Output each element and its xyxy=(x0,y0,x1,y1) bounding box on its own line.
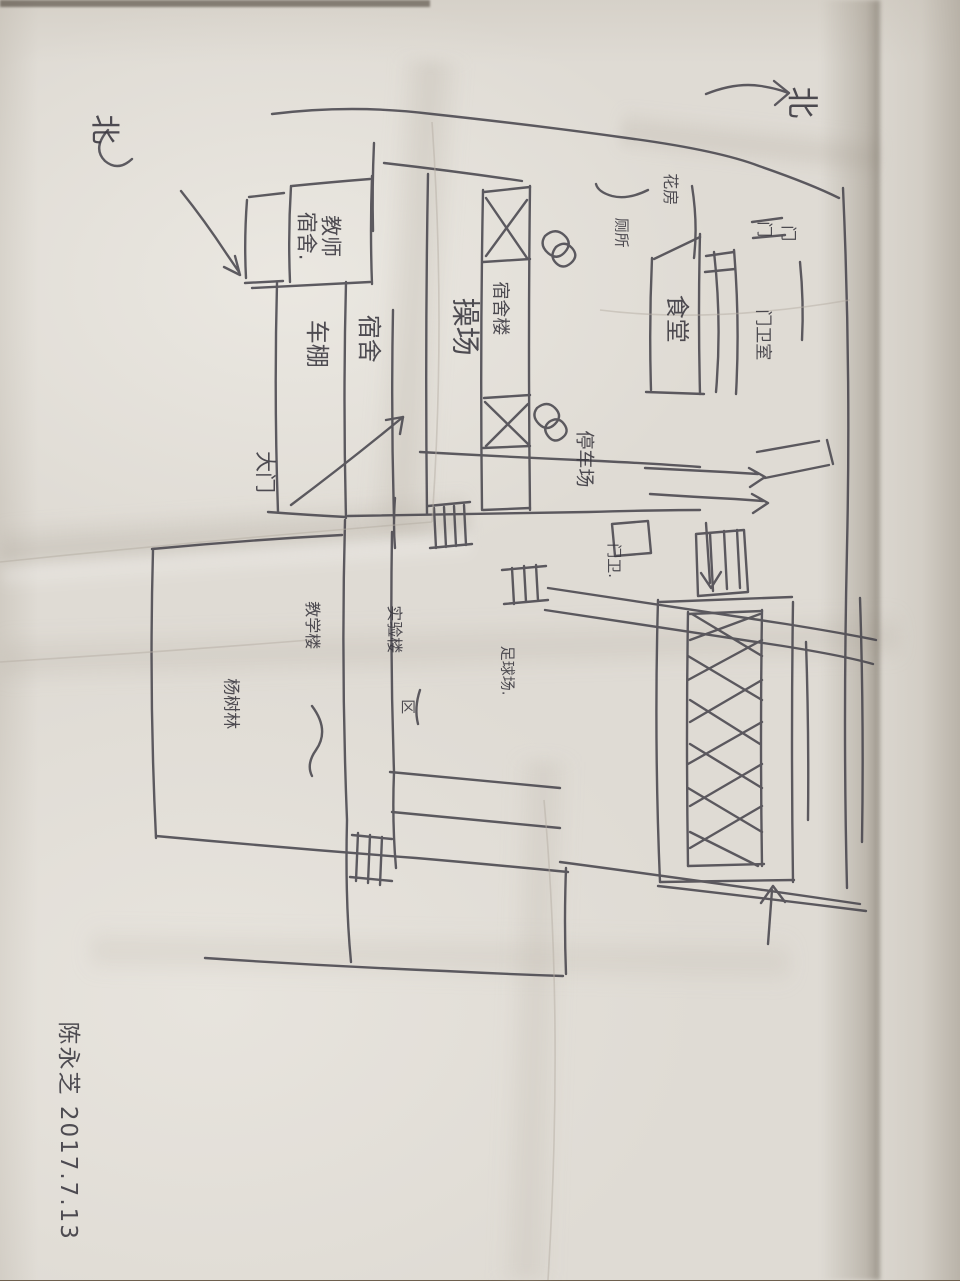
sketch-strokes xyxy=(0,0,960,1280)
label-dorm-building: 宿舍楼 xyxy=(489,281,510,335)
arrow-up xyxy=(761,886,785,944)
north-label-top-left: 北 xyxy=(86,114,121,144)
road-right xyxy=(843,188,848,888)
gate-hatch-2 xyxy=(502,565,548,604)
boundary-top xyxy=(272,109,839,198)
label-canteen: 食堂 xyxy=(662,295,690,343)
photo-of-sketch: 北 北 教师 宿舍. 车棚 宿舍 大门 操场 宿舍楼 食堂 花房 厕所 门 门 … xyxy=(0,0,960,1280)
label-toilet: 厕所 xyxy=(612,218,629,248)
label-gate-char-b: 门 xyxy=(779,225,797,241)
label-teaching-building: 教学楼 xyxy=(303,601,321,649)
label-teacher-dorm: 教师 宿舍. xyxy=(294,212,342,261)
north-label-top-right: 北 xyxy=(784,86,821,118)
label-poplar-grove: 杨树林 xyxy=(220,678,240,729)
label-area-char: 区 xyxy=(399,699,416,714)
x-mark-1 xyxy=(486,198,527,258)
blob-2 xyxy=(534,404,566,441)
tl-arrow-head xyxy=(224,256,240,275)
north-arrow-line xyxy=(706,85,788,94)
label-lab-building: 实验楼 xyxy=(385,605,403,653)
arrow-right-1 xyxy=(645,468,765,487)
x-mark-2 xyxy=(485,402,528,446)
hatched-box-right xyxy=(696,530,748,596)
label-gate-char-a: 门 xyxy=(755,221,773,237)
blob-1 xyxy=(543,231,576,266)
label-football-field: 足球场. xyxy=(498,646,515,696)
gate-hatch-3 xyxy=(350,833,392,885)
gate-hatch-1 xyxy=(428,502,472,548)
label-gate-keeper: 门卫. xyxy=(605,543,622,578)
tl-arrow-line xyxy=(181,191,239,272)
label-dorm: 宿舍 xyxy=(354,315,382,363)
label-playground: 操场 xyxy=(448,298,481,356)
label-bike-shed: 车棚 xyxy=(302,320,330,368)
label-gate-house: 门卫室 xyxy=(752,309,772,360)
label-parking-lot: 停车场 xyxy=(573,430,595,487)
label-main-gate: 大门 xyxy=(253,451,277,493)
signature-and-date: 陈永芝 2017.7.13 xyxy=(54,1022,80,1241)
label-flower-house: 花房 xyxy=(661,173,679,205)
